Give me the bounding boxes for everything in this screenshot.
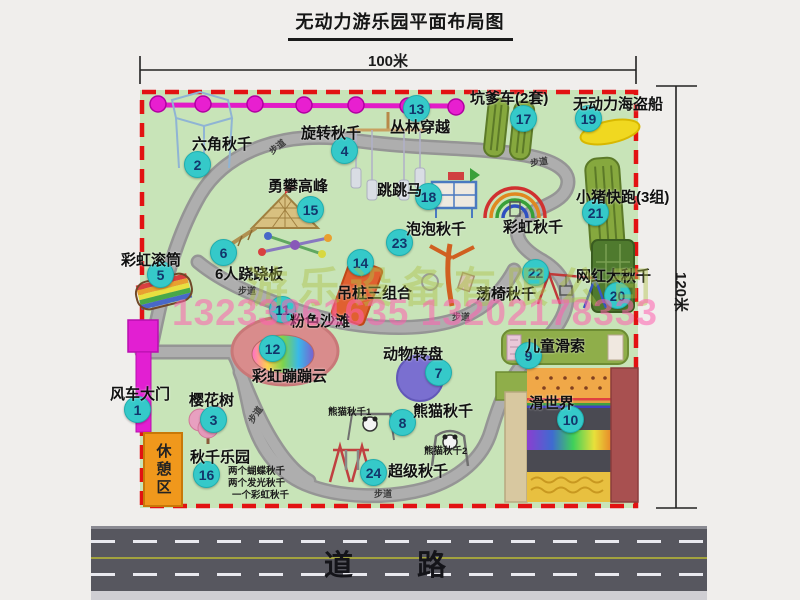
width-dimension-label: 100米 [368,50,408,71]
watermark-phones: 13233861635 13202178333 [172,292,658,334]
label-bubble-swing: 泡泡秋千 [406,218,466,239]
marker-8: 8 [389,409,416,436]
marker-24: 24 [360,459,387,486]
height-dimension-label: 120米 [671,272,692,312]
label-rainbow-swing: 彩虹秋千 [503,216,563,237]
marker-6: 6 [210,239,237,266]
label-panda-swing-2: 熊猫秋千2 [424,443,467,457]
marker-15: 15 [297,196,324,223]
label-pirate-ship: 无动力海盗船 [573,93,663,114]
label-bouncing-cloud: 彩虹蹦蹦云 [252,365,327,386]
label-jumping-horse: 跳跳马 [377,179,422,200]
title-bar: 无动力游乐园平面布局图 [0,8,800,41]
label-panda-swing: 熊猫秋千 [413,400,473,421]
marker-12: 12 [259,335,286,362]
rest-area-label: 休憩区 [153,443,174,497]
label-rainbow-roller: 彩虹滚筒 [121,249,181,270]
label-piggy-run: 小猪快跑(3组) [576,186,669,207]
label-panda-swing-1: 熊猫秋千1 [328,404,371,418]
path-tag-6: 步道 [374,487,392,500]
park-layout-map: 无动力游乐园平面布局图 [0,0,800,600]
label-super-swing: 超级秋千 [388,460,448,481]
label-swing-park-item-3: 一个彩虹秋千 [232,487,289,501]
road-label: 道 路 [91,542,707,584]
marker-17: 17 [510,105,537,132]
rest-area: 休憩区 [143,432,183,507]
label-slide-world: 滑世界 [529,392,574,413]
road: 道 路 [91,526,707,591]
label-rotating-swing: 旋转秋千 [301,122,361,143]
label-crazy-cart: 坑爹车(2套) [470,87,548,108]
marker-2: 2 [184,151,211,178]
label-windmill-gate: 风车大门 [110,383,170,404]
label-hexagon-swing: 六角秋千 [192,133,252,154]
marker-3: 3 [200,406,227,433]
road-shoulder [91,591,707,600]
page-title: 无动力游乐园平面布局图 [288,8,513,41]
label-animal-carousel: 动物转盘 [383,343,443,364]
label-jungle-crossing: 丛林穿越 [390,116,450,137]
label-kids-zipline: 儿童滑索 [525,335,585,356]
label-cherry-tree: 樱花树 [189,389,234,410]
slide-world-graphic [496,368,638,502]
label-climbing-peak: 勇攀高峰 [268,175,328,196]
path-tag-2: 步道 [529,154,549,169]
